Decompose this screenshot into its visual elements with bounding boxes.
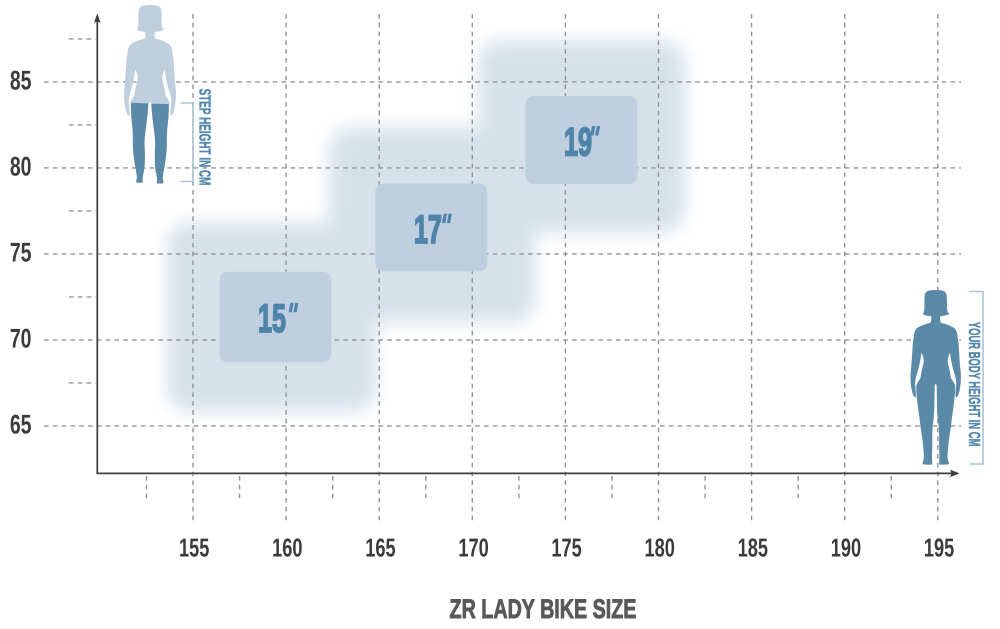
svg-text:80: 80 [10,152,32,182]
svg-text:75: 75 [10,238,32,268]
svg-text:180: 180 [645,533,675,563]
svg-text:15: 15 [258,297,286,341]
svg-text:19: 19 [564,120,592,164]
svg-text:70: 70 [10,324,32,354]
svg-text:17: 17 [414,208,442,252]
svg-text:ZR LADY BIKE SIZE: ZR LADY BIKE SIZE [450,594,637,624]
svg-text:65: 65 [10,410,32,440]
svg-text:175: 175 [551,533,581,563]
svg-text:YOUR BODY HEIGHT IN CM: YOUR BODY HEIGHT IN CM [965,322,982,447]
svg-text:170: 170 [458,533,488,563]
svg-text:185: 185 [738,533,768,563]
svg-text:155: 155 [179,533,209,563]
svg-text:190: 190 [831,533,861,563]
svg-text:85: 85 [10,66,32,96]
svg-text:195: 195 [924,533,954,563]
svg-text:160: 160 [272,533,302,563]
svg-text:STEP HEIGHT IN CM: STEP HEIGHT IN CM [196,89,213,186]
svg-text:165: 165 [365,533,395,563]
